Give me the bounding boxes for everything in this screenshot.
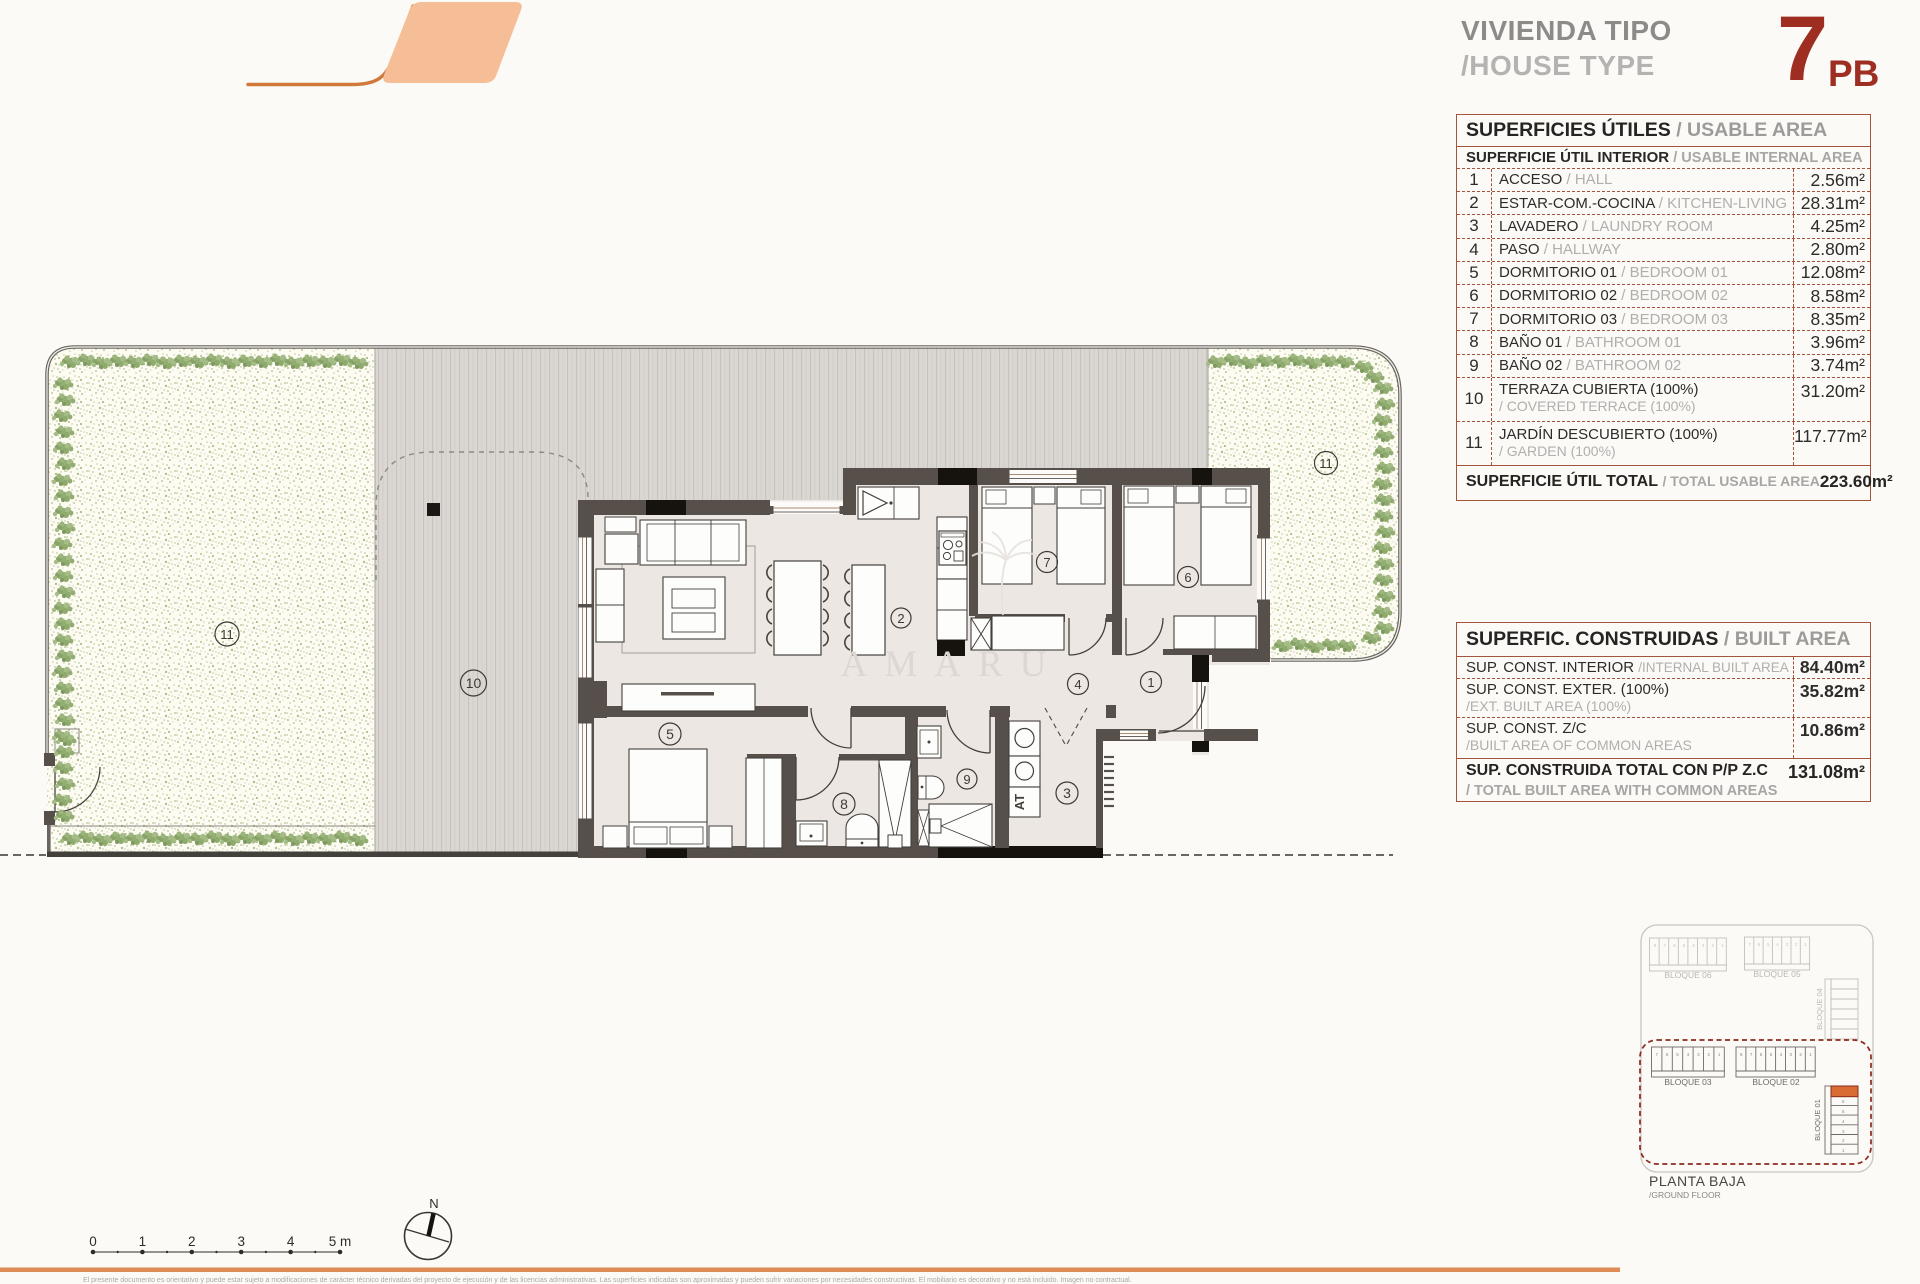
svg-text:4: 4 [1074, 677, 1081, 692]
svg-text:7: 7 [1664, 943, 1667, 948]
svg-text:6: 6 [1760, 1052, 1763, 1057]
svg-text:1: 1 [139, 1234, 147, 1249]
svg-text:1: 1 [1804, 942, 1807, 947]
svg-text:9: 9 [963, 772, 970, 787]
svg-text:1: 1 [1147, 675, 1154, 690]
svg-text:6: 6 [1758, 942, 1761, 947]
svg-text:4: 4 [1776, 942, 1779, 947]
svg-text:5 m: 5 m [329, 1234, 352, 1249]
svg-text:7: 7 [1656, 1052, 1659, 1057]
svg-text:2: 2 [188, 1234, 196, 1249]
svg-text:0: 0 [89, 1234, 97, 1249]
svg-text:BLOQUE 02: BLOQUE 02 [1752, 1077, 1800, 1087]
svg-text:2: 2 [897, 611, 904, 626]
svg-text:BLOQUE 03: BLOQUE 03 [1664, 1077, 1712, 1087]
svg-text:AT: AT [1012, 794, 1027, 810]
svg-text:2: 2 [1795, 942, 1798, 947]
svg-text:4: 4 [1692, 943, 1695, 948]
svg-text:4: 4 [1780, 1052, 1783, 1057]
svg-text:2: 2 [1708, 1052, 1711, 1057]
svg-text:1: 1 [1721, 943, 1724, 948]
svg-text:6: 6 [1666, 1052, 1669, 1057]
svg-text:3: 3 [1702, 943, 1705, 948]
svg-text:5: 5 [1767, 942, 1770, 947]
svg-text:2: 2 [1799, 1052, 1802, 1057]
svg-text:PLANTA BAJA: PLANTA BAJA [1649, 1173, 1746, 1189]
svg-text:6: 6 [1673, 943, 1676, 948]
svg-text:8: 8 [1740, 1052, 1743, 1057]
svg-text:7: 7 [1749, 942, 1752, 947]
svg-text:AMARU: AMARU [841, 644, 1064, 685]
svg-text:10: 10 [466, 675, 482, 691]
svg-text:N: N [429, 1196, 438, 1211]
svg-text:3: 3 [1842, 1129, 1845, 1134]
svg-text:5: 5 [666, 726, 674, 742]
svg-text:5: 5 [1770, 1052, 1773, 1057]
svg-text:2: 2 [1842, 1138, 1845, 1143]
svg-text:4: 4 [1842, 1119, 1845, 1124]
svg-text:BLOQUE 06: BLOQUE 06 [1664, 970, 1712, 980]
svg-text:5: 5 [1676, 1052, 1679, 1057]
svg-text:1: 1 [1718, 1052, 1721, 1057]
svg-text:2: 2 [1712, 943, 1715, 948]
svg-text:4: 4 [287, 1234, 295, 1249]
svg-text:3: 3 [1063, 785, 1071, 801]
svg-text:BLOQUE 01: BLOQUE 01 [1813, 1099, 1822, 1141]
svg-text:11: 11 [1319, 456, 1333, 471]
svg-text:3: 3 [237, 1234, 245, 1249]
svg-text:1: 1 [1809, 1052, 1812, 1057]
svg-text:3: 3 [1697, 1052, 1700, 1057]
svg-text:1: 1 [1842, 1148, 1845, 1153]
svg-text:/GROUND FLOOR: /GROUND FLOOR [1649, 1190, 1721, 1200]
svg-text:3: 3 [1786, 942, 1789, 947]
svg-text:5: 5 [1842, 1109, 1845, 1114]
svg-text:11: 11 [220, 627, 234, 642]
svg-text:BLOQUE 05: BLOQUE 05 [1753, 969, 1801, 979]
svg-text:6: 6 [1842, 1099, 1845, 1104]
svg-text:BLOQUE 04: BLOQUE 04 [1815, 988, 1824, 1030]
svg-text:7: 7 [1043, 555, 1050, 570]
svg-text:5: 5 [1683, 943, 1686, 948]
svg-text:7: 7 [1750, 1052, 1753, 1057]
svg-text:8: 8 [840, 796, 848, 812]
svg-text:6: 6 [1184, 570, 1191, 585]
svg-text:4: 4 [1687, 1052, 1690, 1057]
svg-text:3: 3 [1790, 1052, 1793, 1057]
svg-text:8: 8 [1654, 943, 1657, 948]
